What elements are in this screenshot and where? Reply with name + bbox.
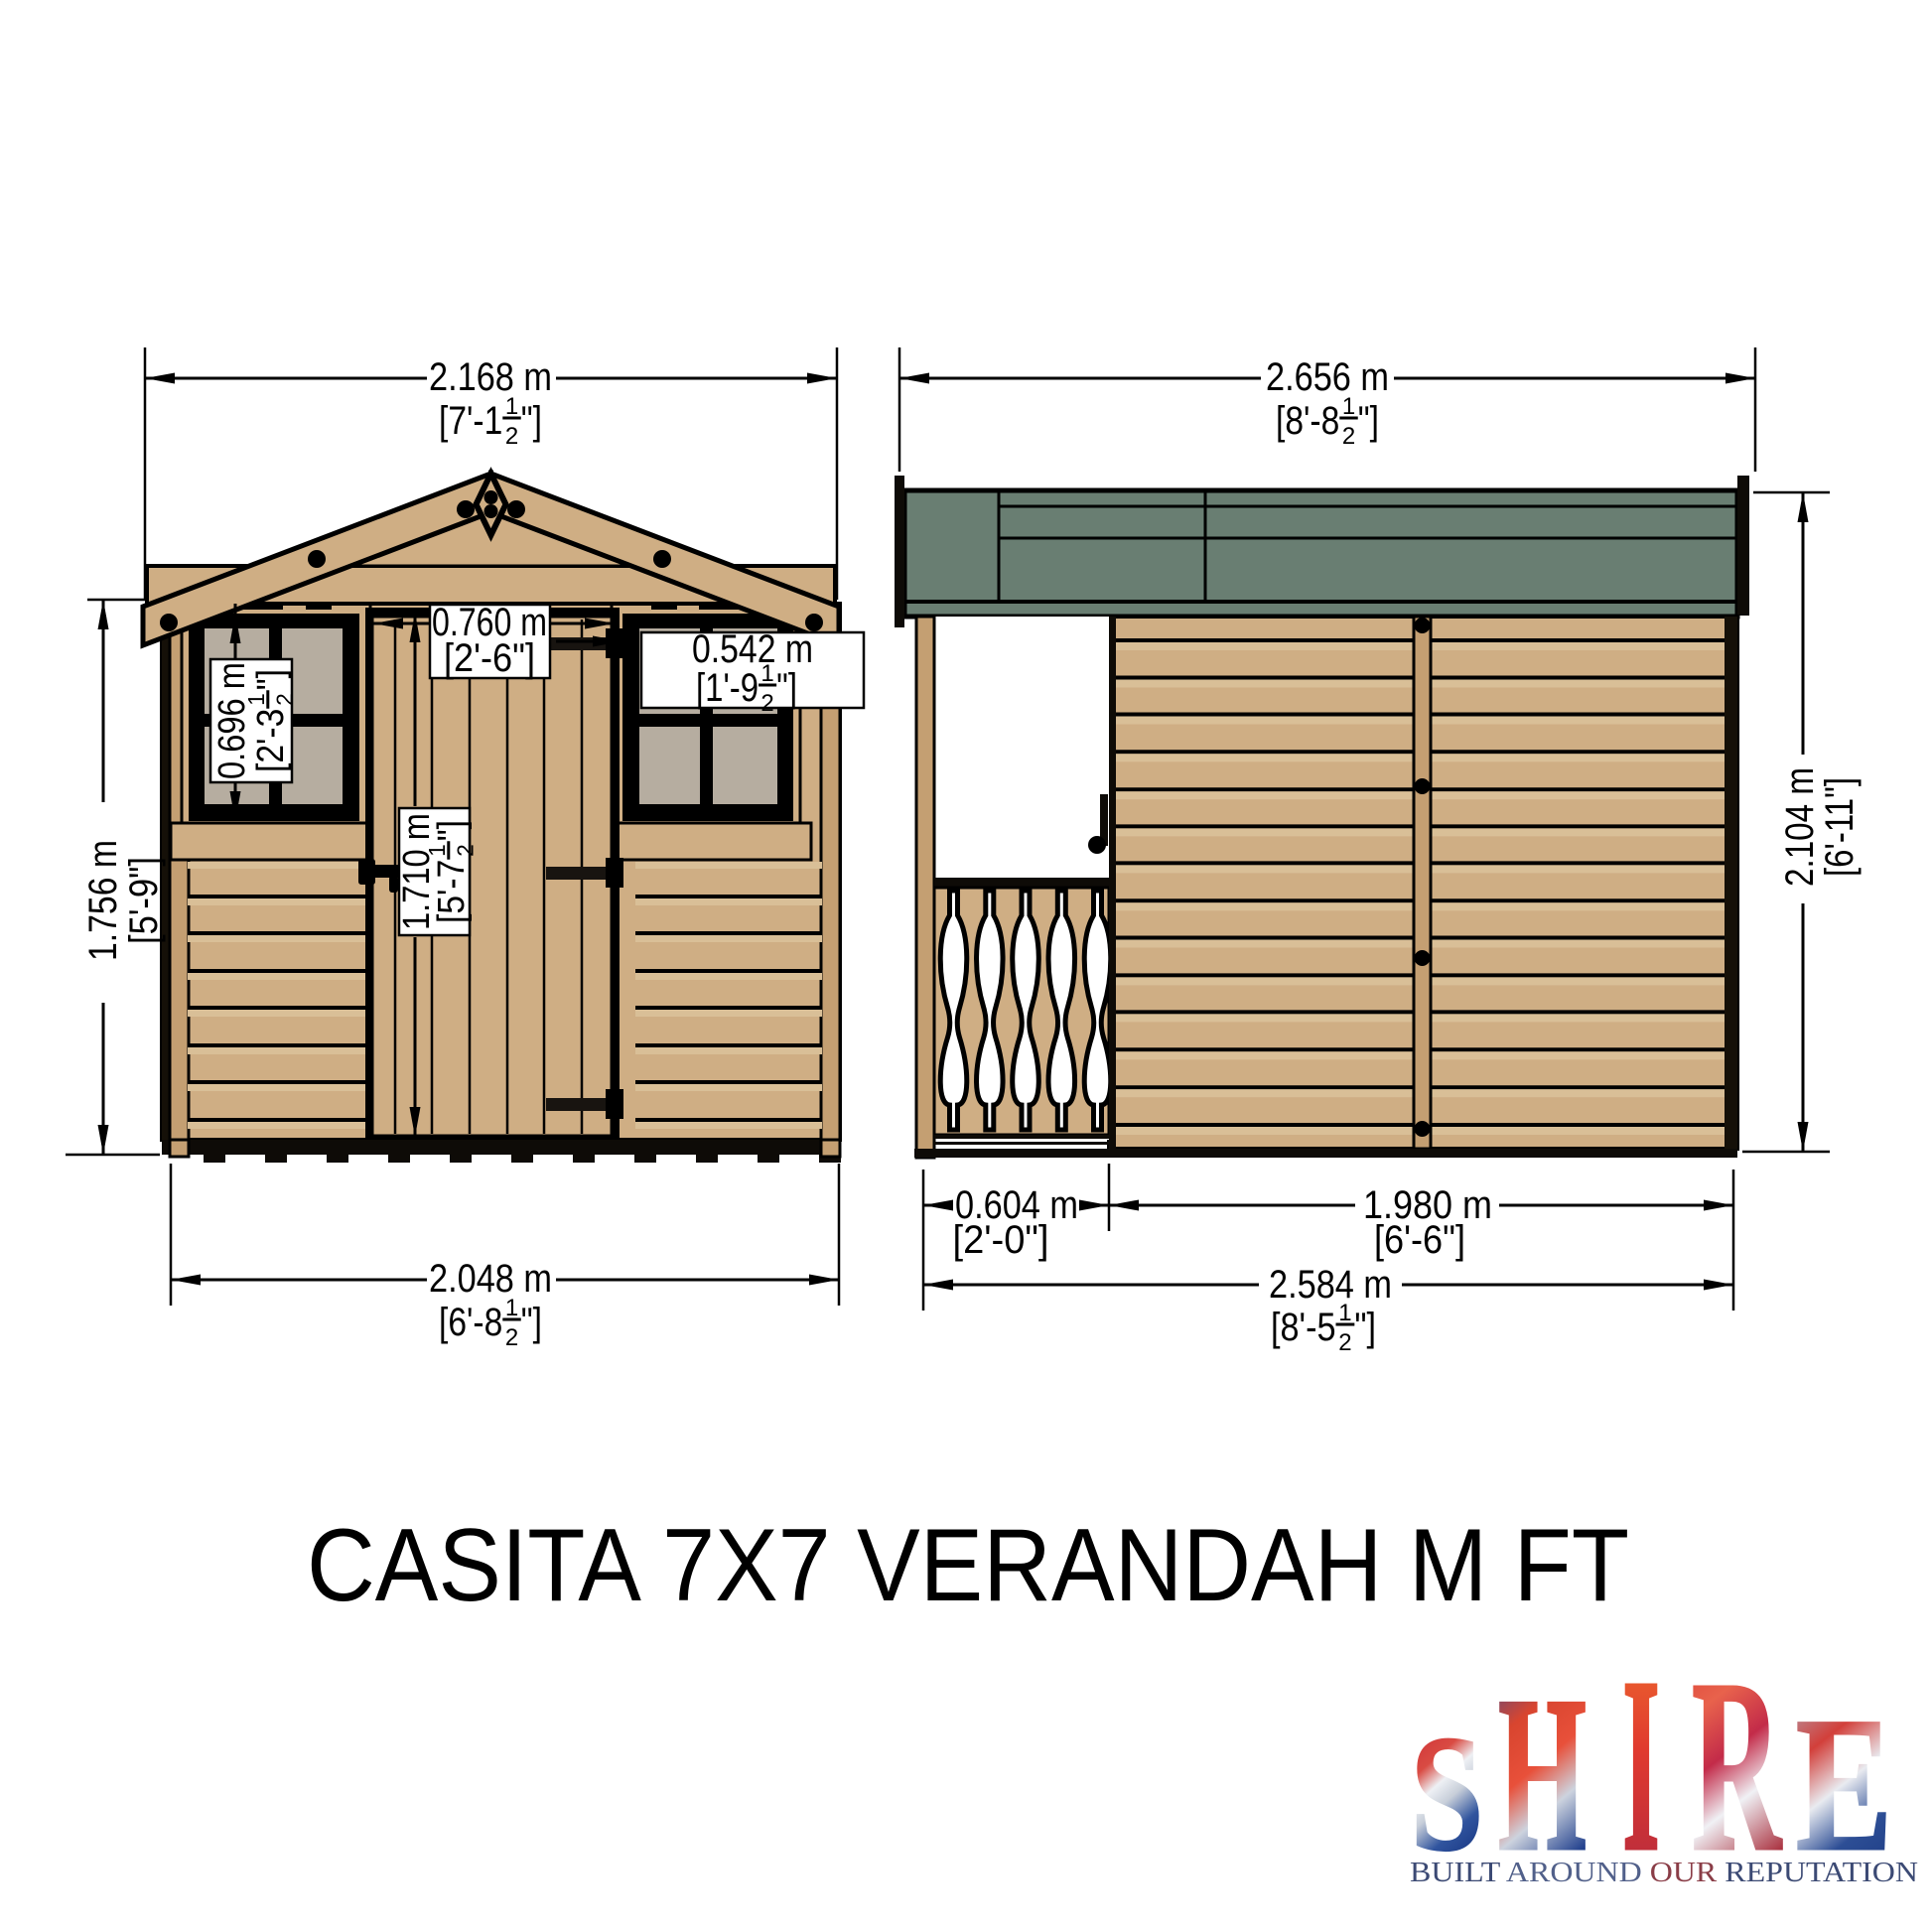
svg-text:[8'-5: [8'-5 bbox=[1271, 1306, 1336, 1349]
svg-text:2.584 m: 2.584 m bbox=[1269, 1263, 1392, 1307]
svg-text:"]: "] bbox=[776, 666, 797, 710]
svg-text:[6'-8: [6'-8 bbox=[439, 1301, 502, 1344]
svg-text:1: 1 bbox=[243, 693, 269, 706]
svg-text:CASITA 7X7 VERANDAH M FT: CASITA 7X7 VERANDAH M FT bbox=[307, 1508, 1629, 1623]
svg-text:[6'-6"]: [6'-6"] bbox=[1374, 1218, 1465, 1262]
svg-text:2: 2 bbox=[505, 1324, 518, 1351]
svg-text:2.048 m: 2.048 m bbox=[429, 1257, 552, 1301]
svg-text:[7'-1: [7'-1 bbox=[439, 399, 502, 443]
svg-text:[1'-9: [1'-9 bbox=[696, 666, 759, 710]
svg-text:2: 2 bbox=[505, 423, 518, 450]
svg-text:"]: "] bbox=[431, 820, 473, 841]
svg-text:1.756 m: 1.756 m bbox=[81, 840, 125, 961]
svg-text:"]: "] bbox=[521, 1301, 542, 1344]
svg-text:2.104 m: 2.104 m bbox=[1778, 767, 1822, 887]
svg-text:"]: "] bbox=[521, 399, 542, 443]
svg-text:1: 1 bbox=[424, 844, 450, 857]
svg-text:2: 2 bbox=[760, 690, 773, 717]
svg-text:0.696 m: 0.696 m bbox=[211, 662, 253, 779]
svg-text:2: 2 bbox=[272, 693, 298, 706]
svg-text:0.542 m: 0.542 m bbox=[692, 627, 813, 671]
svg-text:BUILT AROUND OUR REPUTATION: BUILT AROUND OUR REPUTATION bbox=[1410, 1857, 1918, 1888]
svg-text:"]: "] bbox=[1358, 399, 1379, 443]
svg-text:"]: "] bbox=[250, 669, 292, 690]
svg-text:2: 2 bbox=[1342, 423, 1355, 450]
svg-text:"]: "] bbox=[1354, 1306, 1376, 1349]
svg-text:1: 1 bbox=[760, 660, 773, 687]
svg-text:[6'-11"]: [6'-11"] bbox=[1818, 777, 1862, 877]
svg-text:[8'-8: [8'-8 bbox=[1276, 399, 1339, 443]
svg-text:1: 1 bbox=[505, 393, 518, 420]
svg-text:[2'-6"]: [2'-6"] bbox=[444, 636, 535, 680]
svg-text:2: 2 bbox=[1338, 1329, 1351, 1356]
svg-text:1: 1 bbox=[1338, 1300, 1351, 1326]
svg-text:[5'-7: [5'-7 bbox=[431, 860, 473, 923]
svg-text:[2'-3: [2'-3 bbox=[250, 709, 292, 772]
svg-text:1: 1 bbox=[1342, 393, 1355, 420]
svg-text:[2'-0"]: [2'-0"] bbox=[953, 1218, 1049, 1262]
svg-text:2.656 m: 2.656 m bbox=[1266, 355, 1389, 399]
svg-text:2: 2 bbox=[453, 844, 479, 857]
svg-text:[5'-9"]: [5'-9"] bbox=[122, 857, 166, 944]
svg-text:2.168 m: 2.168 m bbox=[429, 355, 552, 399]
svg-text:1: 1 bbox=[505, 1295, 518, 1321]
